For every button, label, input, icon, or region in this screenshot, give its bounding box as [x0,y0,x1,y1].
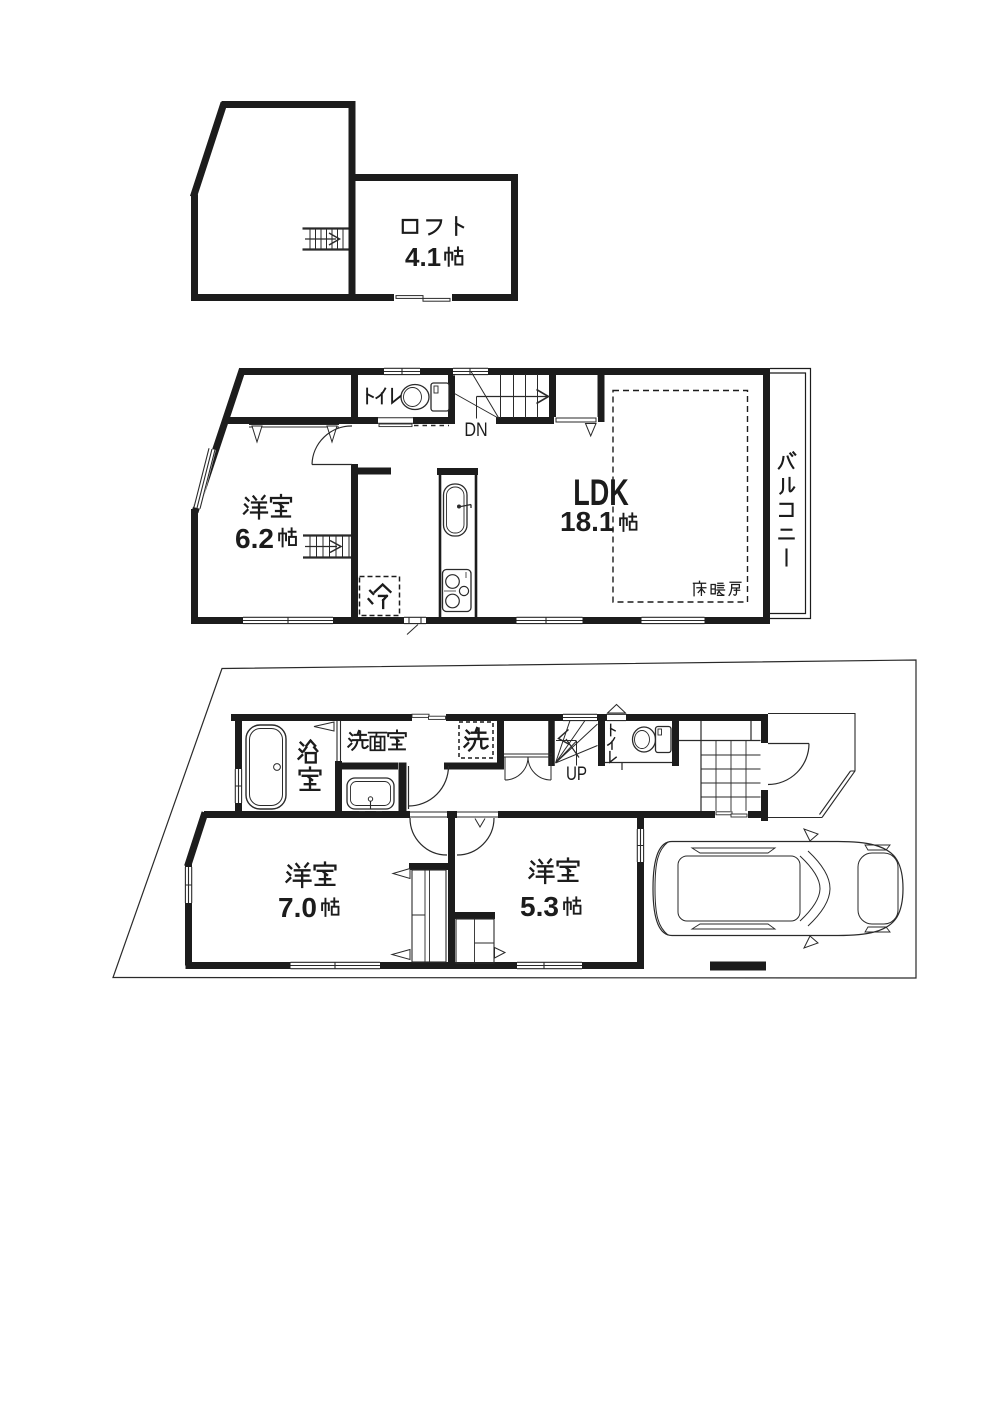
svg-text:7.0: 7.0 [278,892,317,923]
svg-text:5.3: 5.3 [520,891,559,922]
svg-text:4.1: 4.1 [405,242,441,272]
svg-text:18.1: 18.1 [560,506,615,537]
svg-text:UP: UP [566,762,587,784]
svg-text:DN: DN [464,419,487,441]
svg-text:6.2: 6.2 [235,523,274,554]
